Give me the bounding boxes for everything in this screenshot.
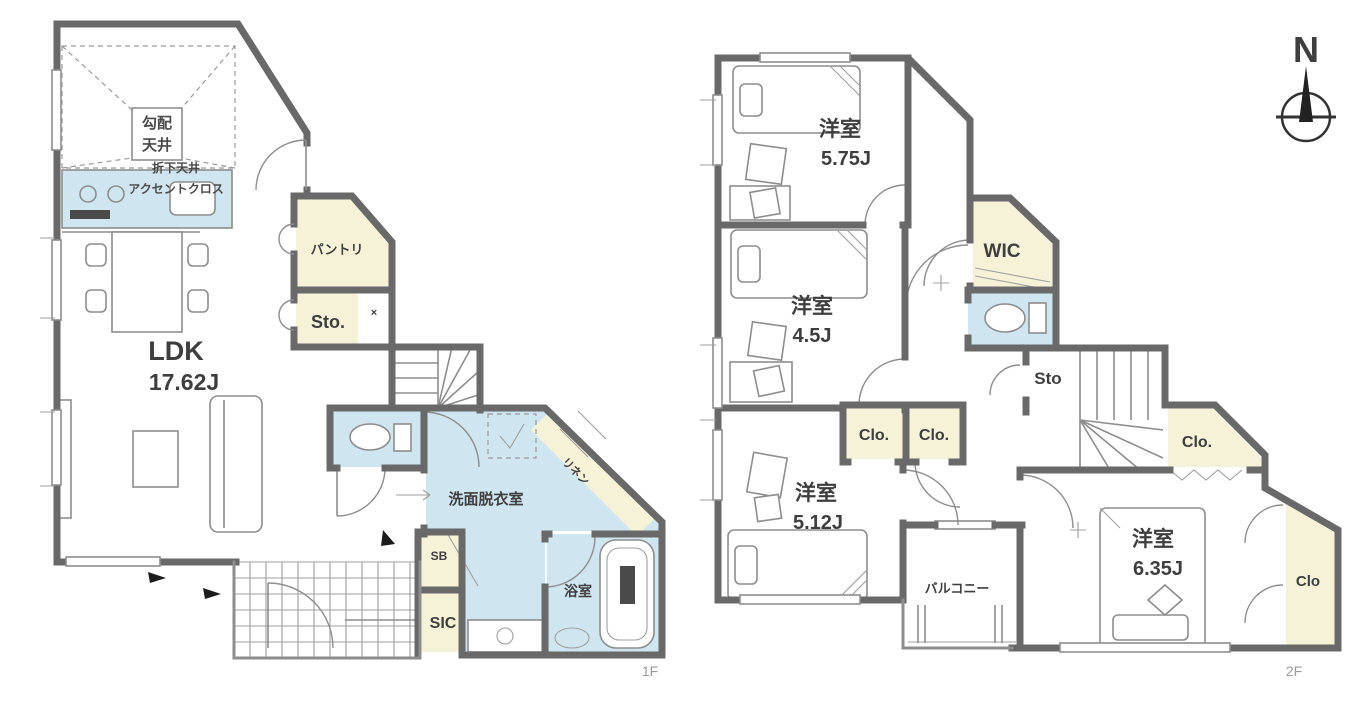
- bedroom2-label: 洋室: [791, 294, 833, 318]
- pillow: [740, 84, 762, 116]
- entry-arrow: [148, 572, 166, 583]
- toilet-tank-icon: [1029, 303, 1046, 333]
- balcony-label: バルコニー: [925, 581, 990, 596]
- floor-1f: 勾配 天井 折下天井 アクセントクロス: [40, 24, 662, 679]
- bedroom2-size: 4.5J: [793, 325, 832, 347]
- north-compass: N: [1276, 29, 1336, 141]
- sloped-ceiling-zone: 勾配 天井: [62, 46, 235, 168]
- grill-icon: [70, 210, 110, 219]
- washbasin: [468, 620, 543, 652]
- chair: [188, 244, 208, 266]
- floor-1f-tag: 1F: [642, 663, 658, 679]
- dining-table: [112, 232, 182, 332]
- stairs-2f: [990, 348, 1163, 470]
- closet1-label: Clo.: [859, 427, 889, 444]
- toilet-tank-icon: [394, 424, 411, 451]
- entrance-porch: [148, 530, 420, 658]
- floorplan-page: 勾配 天井 折下天井 アクセントクロス: [0, 0, 1361, 705]
- ceiling-callout-line1: 勾配: [142, 114, 172, 132]
- chair: [754, 494, 781, 521]
- chair: [750, 188, 780, 218]
- chair: [86, 244, 106, 266]
- bedroom1-size: 5.75J: [821, 148, 871, 170]
- chair: [86, 290, 106, 312]
- closet2-label: Clo.: [919, 427, 949, 444]
- closet4-label: Clo: [1296, 573, 1320, 590]
- bedroom1-label: 洋室: [819, 117, 861, 141]
- stairs-1f: [394, 347, 478, 408]
- pillow: [735, 546, 757, 584]
- bathtub-faucet-icon: [620, 566, 635, 604]
- washroom-label: 洗面脱衣室: [448, 490, 523, 508]
- north-label: N: [1293, 29, 1319, 70]
- chair: [188, 290, 208, 312]
- storage-x-mark: ×: [371, 307, 377, 319]
- toilet-icon: [985, 304, 1025, 332]
- shoe-box-label: SB: [431, 549, 448, 563]
- closet4-area: [1286, 496, 1335, 645]
- bedroom4-size: 6.35J: [1133, 558, 1183, 580]
- ldk-size-label: 17.62J: [149, 369, 219, 395]
- ldk-label: LDK: [148, 336, 204, 366]
- pillow: [738, 246, 760, 282]
- pantry-label: パントリ: [311, 242, 364, 257]
- floorplan-canvas: 勾配 天井 折下天井 アクセントクロス: [0, 0, 1361, 705]
- storage-2f-label: Sto: [1034, 369, 1061, 388]
- kitchen-note-2: アクセントクロス: [128, 182, 223, 196]
- low-table: [133, 431, 178, 487]
- pillow: [1113, 615, 1188, 640]
- storage-1f-label: Sto.: [311, 312, 345, 332]
- toilet-icon: [350, 424, 390, 450]
- desk: [748, 322, 786, 360]
- ceiling-callout-line2: 天井: [142, 136, 172, 154]
- desk: [747, 452, 787, 497]
- chair: [754, 366, 785, 397]
- closet3-label: Clo.: [1182, 434, 1212, 451]
- floor-2f: 洋室 5.75J 洋室 4.5J 洋室 5.12J 洋室 6.35J WIC S…: [700, 53, 1338, 679]
- bedroom3-label: 洋室: [795, 481, 837, 505]
- wic-label: WIC: [984, 241, 1021, 262]
- entry-arrow: [203, 588, 221, 599]
- entrance-door-arc: [268, 583, 333, 648]
- bedroom4-label: 洋室: [1132, 527, 1174, 551]
- shoe-in-closet-label: SIC: [430, 615, 457, 632]
- floor-2f-labels: 洋室 5.75J 洋室 4.5J 洋室 5.12J 洋室 6.35J WIC S…: [791, 117, 1320, 679]
- bedroom3-size: 5.12J: [793, 512, 843, 534]
- sofa: [210, 396, 262, 532]
- balcony-door-sill: [935, 521, 995, 529]
- kitchen-note-1: 折下天井: [152, 160, 200, 175]
- floor-2f-tag: 2F: [1286, 663, 1302, 679]
- entry-arrow: [381, 530, 395, 546]
- desk: [746, 144, 787, 185]
- bath-label: 浴室: [564, 583, 592, 599]
